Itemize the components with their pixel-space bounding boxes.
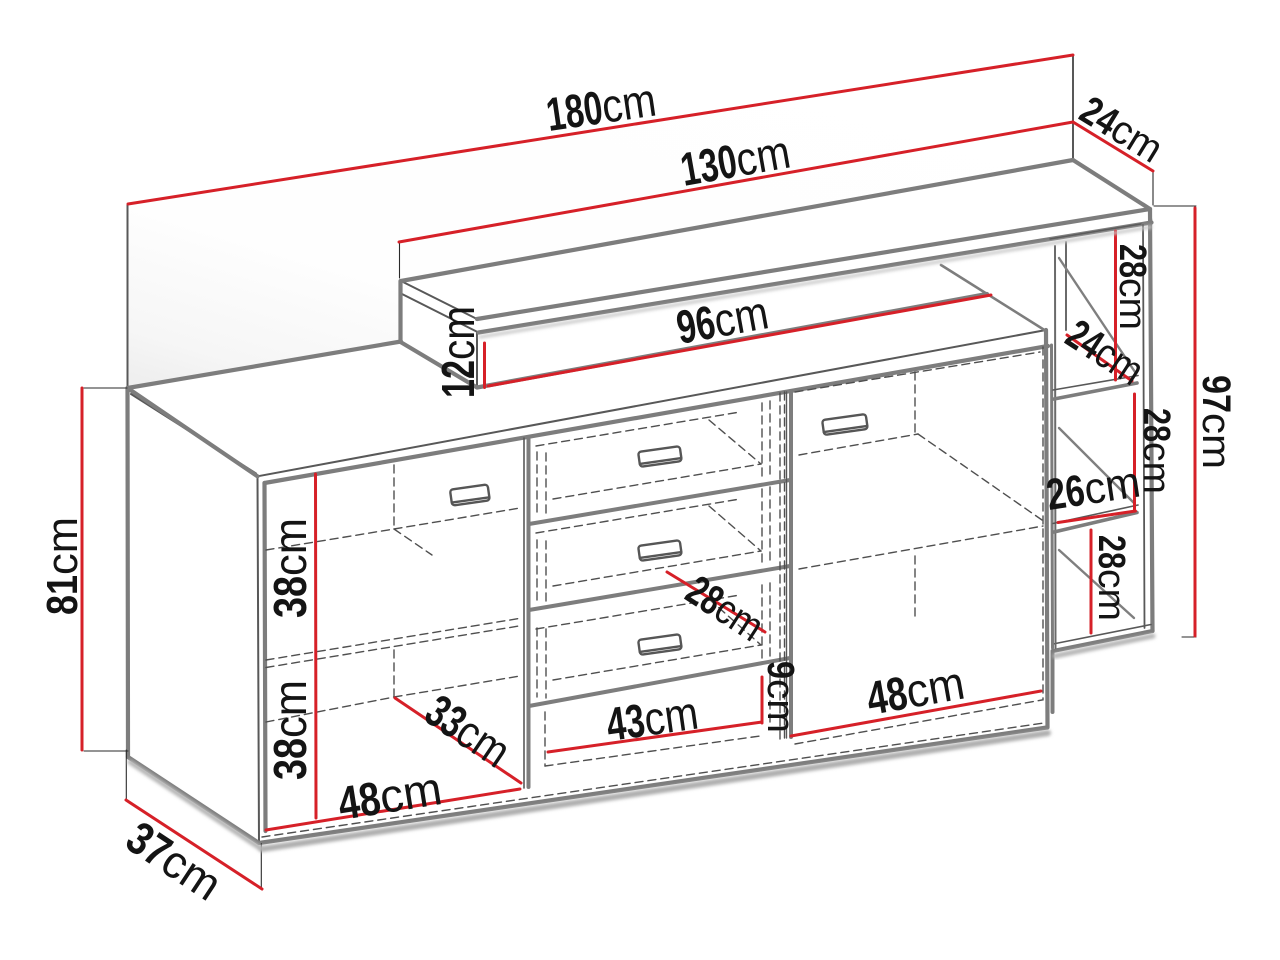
svg-text:180: 180 — [543, 80, 606, 141]
svg-text:cm: cm — [1111, 278, 1153, 330]
svg-text:cm: cm — [38, 517, 87, 575]
svg-text:cm: cm — [1081, 458, 1144, 515]
svg-text:cm: cm — [1194, 413, 1238, 469]
svg-text:cm: cm — [376, 761, 446, 823]
svg-text:cm: cm — [432, 306, 484, 360]
svg-text:cm: cm — [264, 518, 316, 576]
svg-text:cm: cm — [732, 125, 794, 187]
svg-text:cm: cm — [641, 686, 702, 746]
svg-text:cm: cm — [1090, 569, 1132, 621]
svg-text:cm: cm — [598, 73, 659, 133]
svg-text:cm: cm — [710, 285, 773, 347]
svg-text:38: 38 — [264, 738, 316, 780]
svg-text:12: 12 — [432, 360, 484, 398]
svg-text:cm: cm — [902, 656, 968, 718]
svg-text:28: 28 — [1090, 535, 1132, 569]
svg-text:81: 81 — [38, 575, 87, 615]
svg-text:cm: cm — [1135, 442, 1177, 494]
svg-text:97: 97 — [1194, 375, 1238, 413]
svg-text:cm: cm — [264, 680, 316, 738]
svg-text:130: 130 — [677, 134, 741, 196]
svg-text:28: 28 — [1135, 408, 1177, 442]
svg-text:38: 38 — [264, 576, 316, 618]
svg-text:9: 9 — [759, 661, 801, 679]
svg-text:cm: cm — [759, 679, 801, 733]
svg-text:28: 28 — [1111, 244, 1153, 278]
